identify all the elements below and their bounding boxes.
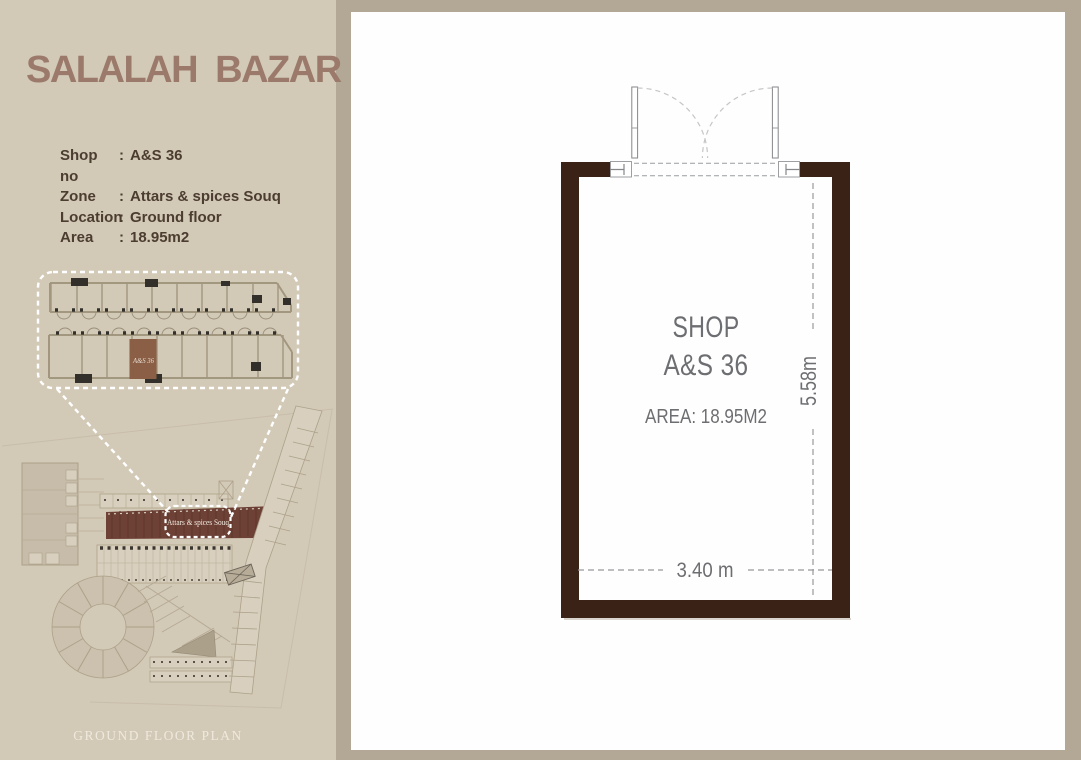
info-row-location: Location : Ground floor xyxy=(60,208,281,229)
detail-inset: A&S 36 xyxy=(38,272,298,388)
shop-info: Shop no : A&S 36 Zone : Attars & spices … xyxy=(60,146,281,249)
info-label: Area xyxy=(60,228,113,249)
door-jamb-right xyxy=(779,162,801,178)
door-leaf-left xyxy=(632,87,638,158)
shop-title-line1: SHOP xyxy=(673,311,740,344)
site-upper-shop-row xyxy=(100,494,228,508)
info-value: 18.95m2 xyxy=(130,228,281,249)
info-value: A&S 36 xyxy=(130,146,281,187)
info-row-area: Area : 18.95m2 xyxy=(60,228,281,249)
door-jamb-left xyxy=(610,162,632,178)
info-colon: : xyxy=(113,228,130,249)
floor-plan-caption: GROUND FLOOR PLAN xyxy=(0,728,316,744)
inset-shop-label: A&S 36 xyxy=(132,357,154,365)
page: SALALAH BAZAR Shop no : A&S 36 Zone : At… xyxy=(0,0,1081,760)
info-label: Shop no xyxy=(60,146,113,187)
width-dim-label: 3.40 m xyxy=(677,559,734,582)
souq-label: Attars & spices Souq xyxy=(167,517,230,527)
sidebar-plan-graphic: A&S 36 Attars & spices Souq xyxy=(0,255,337,715)
door-swing-arcs xyxy=(638,88,773,158)
info-colon: : xyxy=(113,146,130,187)
brand-title: SALALAH BAZAR xyxy=(26,50,341,92)
shop-labels: SHOP A&S 36 AREA: 18.95M2 xyxy=(645,311,767,428)
door-leaf-right xyxy=(772,87,778,158)
info-colon: : xyxy=(113,208,130,229)
entrance-door xyxy=(610,87,800,177)
inset-row-bottom: A&S 36 xyxy=(49,328,292,383)
info-label: Zone xyxy=(60,187,113,208)
info-value: Attars & spices Souq xyxy=(130,187,281,208)
sidebar: SALALAH BAZAR Shop no : A&S 36 Zone : At… xyxy=(0,0,336,760)
info-label: Location xyxy=(60,208,113,229)
plan-panel: 5.58m 3.40 m SHOP A&S 36 AREA: 18.95M2 xyxy=(351,12,1065,750)
site-left-building xyxy=(22,463,104,565)
dimensions: 5.58m 3.40 m xyxy=(578,183,832,599)
site-wedge xyxy=(172,630,216,657)
info-colon: : xyxy=(113,187,130,208)
site-bottom-strips xyxy=(150,657,232,682)
inset-row-top xyxy=(50,278,291,319)
info-row-zone: Zone : Attars & spices Souq xyxy=(60,187,281,208)
shop-plan: 5.58m 3.40 m SHOP A&S 36 AREA: 18.95M2 xyxy=(351,12,1065,750)
info-row-shop-no: Shop no : A&S 36 xyxy=(60,146,281,187)
shop-title-line2: A&S 36 xyxy=(664,349,749,382)
height-dim-label: 5.58m xyxy=(796,356,821,406)
info-value: Ground floor xyxy=(130,208,281,229)
shop-area-label: AREA: 18.95M2 xyxy=(645,406,767,428)
site-plan-map xyxy=(2,406,333,708)
